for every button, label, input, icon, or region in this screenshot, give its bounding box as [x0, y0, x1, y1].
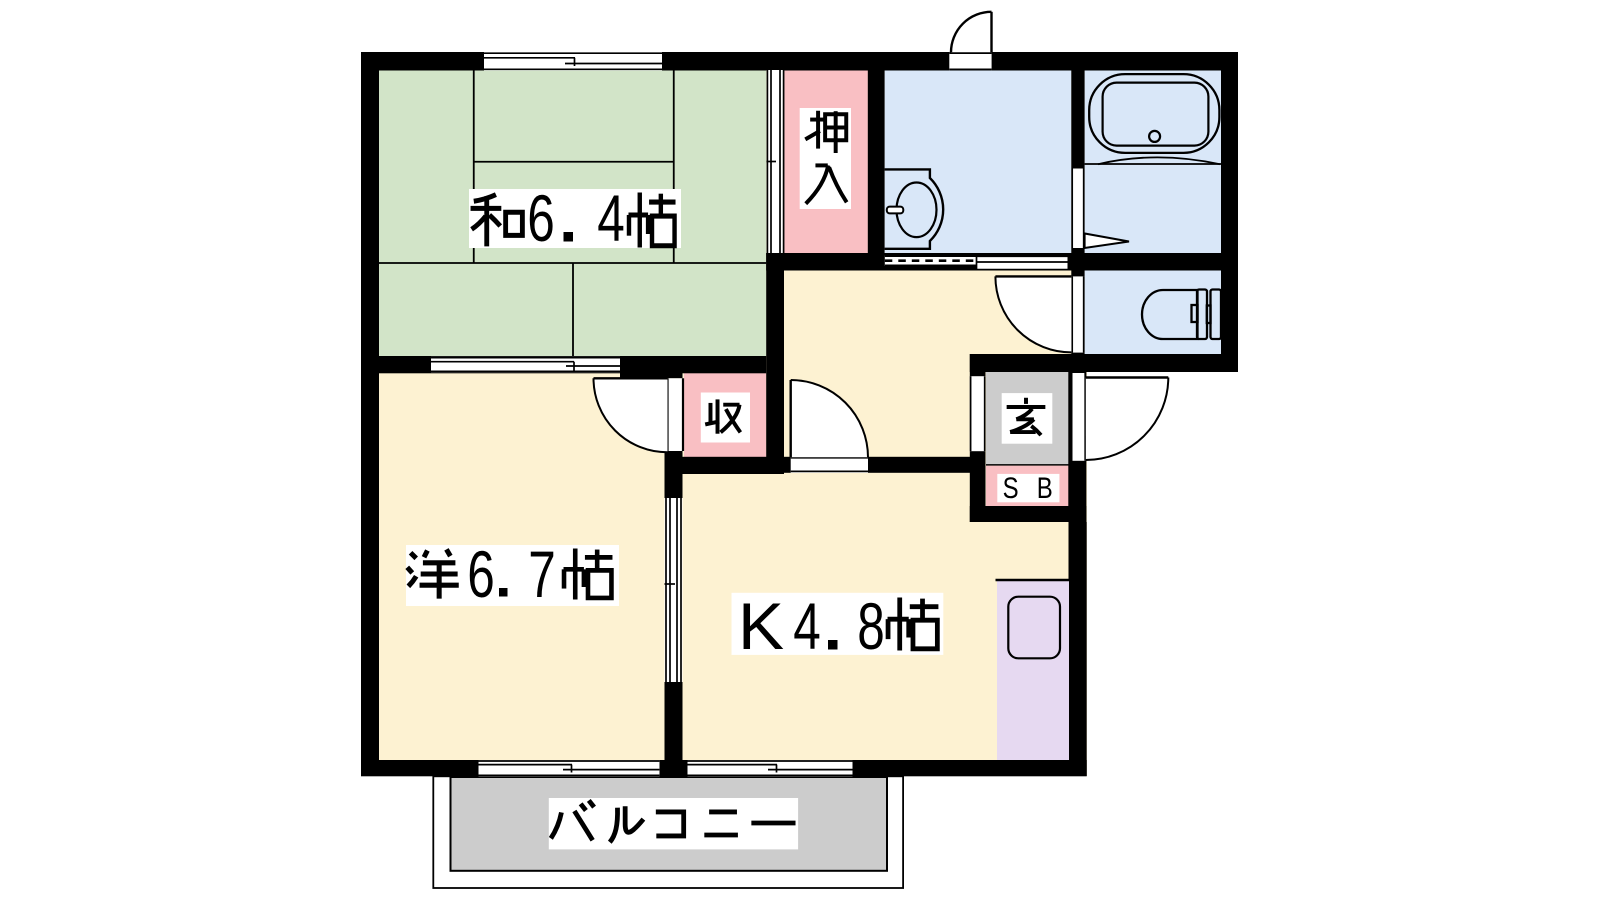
svg-text:K: K — [738, 590, 784, 663]
svg-text:4: 4 — [793, 590, 821, 664]
svg-text:B: B — [1037, 470, 1053, 504]
svg-text:7: 7 — [528, 538, 556, 612]
svg-text:4: 4 — [597, 182, 625, 256]
svg-text:8: 8 — [857, 590, 885, 664]
svg-text:S: S — [1003, 470, 1019, 504]
svg-text:6: 6 — [467, 538, 495, 612]
svg-text:6: 6 — [527, 182, 555, 256]
